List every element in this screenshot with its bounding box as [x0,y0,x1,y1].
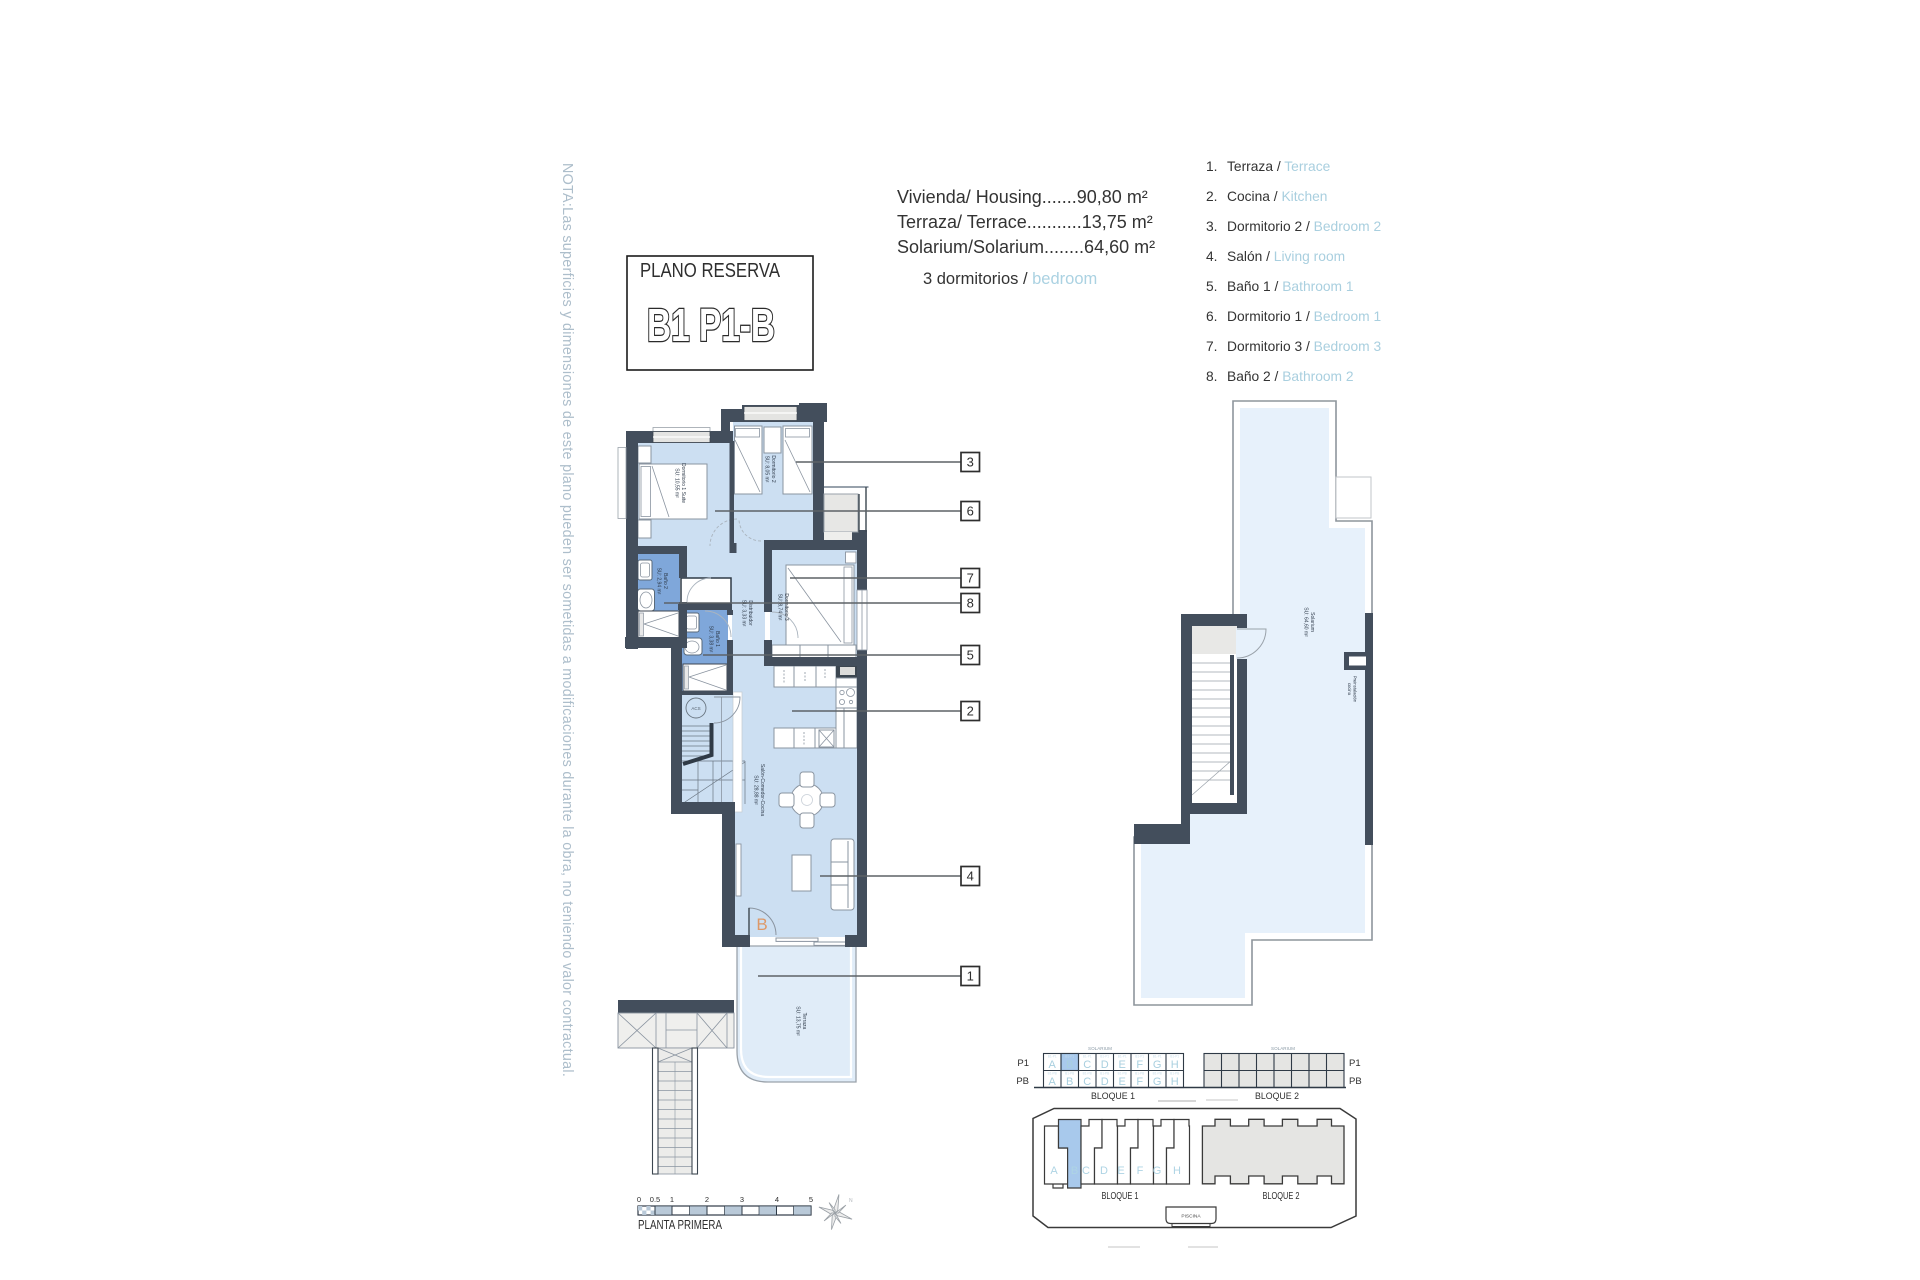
svg-text:5: 5 [809,1195,813,1204]
svg-text:B1-PB: B1-PB [1135,1072,1144,1076]
svg-text:5.: 5. [1206,279,1218,294]
svg-text:3: 3 [740,1195,744,1204]
svg-text:P1: P1 [1349,1058,1361,1069]
svg-text:BLOQUE 1: BLOQUE 1 [1091,1091,1135,1101]
svg-text:NOTA:Las superficies y dimensi: NOTA:Las superficies y dimensiones de es… [559,163,575,1077]
svg-text:D: D [1101,1076,1109,1088]
svg-text:B1-PB: B1-PB [1153,1072,1162,1076]
svg-text:2: 2 [705,1195,709,1204]
svg-text:4: 4 [775,1195,779,1204]
svg-text:SOLARIUM: SOLARIUM [1271,1046,1295,1051]
svg-text:PB: PB [1016,1076,1029,1087]
svg-text:C: C [1083,1076,1091,1088]
svg-text:Salón / Living room: Salón / Living room [1227,249,1345,264]
svg-text:PB: PB [1349,1076,1362,1087]
svg-text:PLANTA PRIMERA: PLANTA PRIMERA [638,1217,722,1232]
svg-text:BLOQUE 2: BLOQUE 2 [1263,1191,1300,1202]
svg-text:A: A [1049,1059,1057,1071]
svg-text:F: F [1136,1059,1143,1071]
svg-text:B1-PB: B1-PB [1170,1072,1179,1076]
svg-text:B1-PB: B1-PB [1118,1072,1127,1076]
svg-text:1: 1 [967,969,974,984]
svg-text:B1-PB: B1-PB [1100,1072,1109,1076]
svg-text:B1-PB: B1-PB [1048,1072,1057,1076]
svg-text:Dormitorio 1 SuiteSU: 10,55 m²: Dormitorio 1 SuiteSU: 10,55 m² [674,463,686,503]
svg-text:4: 4 [967,869,974,884]
svg-text:7.: 7. [1206,339,1218,354]
svg-text:B1-P1: B1-P1 [1153,1055,1162,1059]
svg-text:6.: 6. [1206,309,1218,324]
svg-text:B1 P1-B: B1 P1-B [647,299,775,351]
svg-text:1: 1 [670,1195,674,1204]
svg-text:Cocina / Kitchen: Cocina / Kitchen [1227,189,1327,204]
svg-text:5: 5 [967,648,974,663]
svg-text:B: B [1071,1165,1078,1177]
svg-text:H: H [1171,1076,1179,1088]
svg-text:E: E [1119,1059,1126,1071]
svg-text:3 dormitorios / bedroom: 3 dormitorios / bedroom [923,270,1097,288]
svg-text:A: A [1050,1165,1058,1177]
svg-text:6: 6 [967,504,974,519]
svg-text:8.: 8. [1206,369,1218,384]
svg-text:8: 8 [967,596,974,611]
svg-text:B: B [756,915,767,934]
svg-text:B1-P1: B1-P1 [1100,1055,1109,1059]
svg-text:Dormitorio 3 / Bedroom 3: Dormitorio 3 / Bedroom 3 [1227,339,1381,354]
svg-text:DistribuidorSU: 3,33 m²: DistribuidorSU: 3,33 m² [741,600,753,627]
svg-text:P1: P1 [1017,1058,1029,1069]
svg-text:B1-PB: B1-PB [1083,1072,1092,1076]
svg-text:B1-P1: B1-P1 [1048,1055,1057,1059]
svg-text:Terraza/ Terrace...........13,: Terraza/ Terrace...........13,75 m² [897,212,1153,232]
svg-text:BLOQUE 1: BLOQUE 1 [1102,1191,1139,1202]
svg-text:D: D [1101,1059,1109,1071]
svg-text:B: B [1066,1059,1073,1071]
svg-text:E: E [1117,1165,1124,1177]
svg-text:0: 0 [637,1195,641,1204]
svg-text:Dormitorio 1 / Bedroom 1: Dormitorio 1 / Bedroom 1 [1227,309,1381,324]
svg-text:D: D [1100,1165,1108,1177]
svg-text:B1-PB: B1-PB [1065,1072,1074,1076]
svg-text:B1-P1: B1-P1 [1065,1055,1074,1059]
svg-text:G: G [1153,1076,1162,1088]
svg-text:4.: 4. [1206,249,1218,264]
svg-text:Terraza / Terrace: Terraza / Terrace [1227,159,1331,174]
svg-text:C: C [1083,1059,1091,1071]
svg-text:2.: 2. [1206,189,1218,204]
svg-text:E: E [1119,1076,1126,1088]
svg-text:A: A [1049,1076,1057,1088]
svg-text:F: F [1137,1165,1144,1177]
svg-text:SOLARIUM: SOLARIUM [1088,1046,1112,1051]
svg-text:Baño 2 / Bathroom 2: Baño 2 / Bathroom 2 [1227,369,1354,384]
svg-text:ACS: ACS [691,706,700,711]
svg-text:N: N [849,1198,853,1204]
svg-text:Dormitorio 3SU: 8,74 m²: Dormitorio 3SU: 8,74 m² [777,593,789,620]
svg-text:F: F [1136,1076,1143,1088]
svg-text:B1-P1: B1-P1 [1135,1055,1144,1059]
svg-text:7: 7 [967,571,974,586]
svg-text:C: C [1082,1165,1090,1177]
svg-text:B: B [1066,1076,1073,1088]
svg-text:B1-P1: B1-P1 [1083,1055,1092,1059]
svg-text:H: H [1173,1165,1181,1177]
svg-text:1.: 1. [1206,159,1218,174]
svg-text:Vivienda/ Housing.......90,80: Vivienda/ Housing.......90,80 m² [897,187,1148,207]
svg-text:G: G [1153,1059,1162,1071]
svg-text:B1-P1: B1-P1 [1170,1055,1179,1059]
svg-text:Dormitorio 2SU: 8,05 m²: Dormitorio 2SU: 8,05 m² [764,455,776,482]
svg-text:G: G [1153,1165,1162,1177]
svg-text:0.5: 0.5 [650,1195,660,1204]
svg-text:2: 2 [967,704,974,719]
svg-text:Solarium/Solarium........64,60: Solarium/Solarium........64,60 m² [897,237,1155,257]
svg-text:B1-P1: B1-P1 [1118,1055,1127,1059]
svg-text:PISCINA: PISCINA [1181,1214,1201,1220]
svg-text:BLOQUE 2: BLOQUE 2 [1255,1091,1299,1101]
svg-text:PLANO RESERVA: PLANO RESERVA [640,260,781,282]
svg-text:Baño 1 / Bathroom 1: Baño 1 / Bathroom 1 [1227,279,1354,294]
svg-text:3: 3 [967,455,974,470]
svg-text:3.: 3. [1206,219,1218,234]
svg-text:H: H [1171,1059,1179,1071]
svg-text:Dormitorio 2 / Bedroom 2: Dormitorio 2 / Bedroom 2 [1227,219,1381,234]
